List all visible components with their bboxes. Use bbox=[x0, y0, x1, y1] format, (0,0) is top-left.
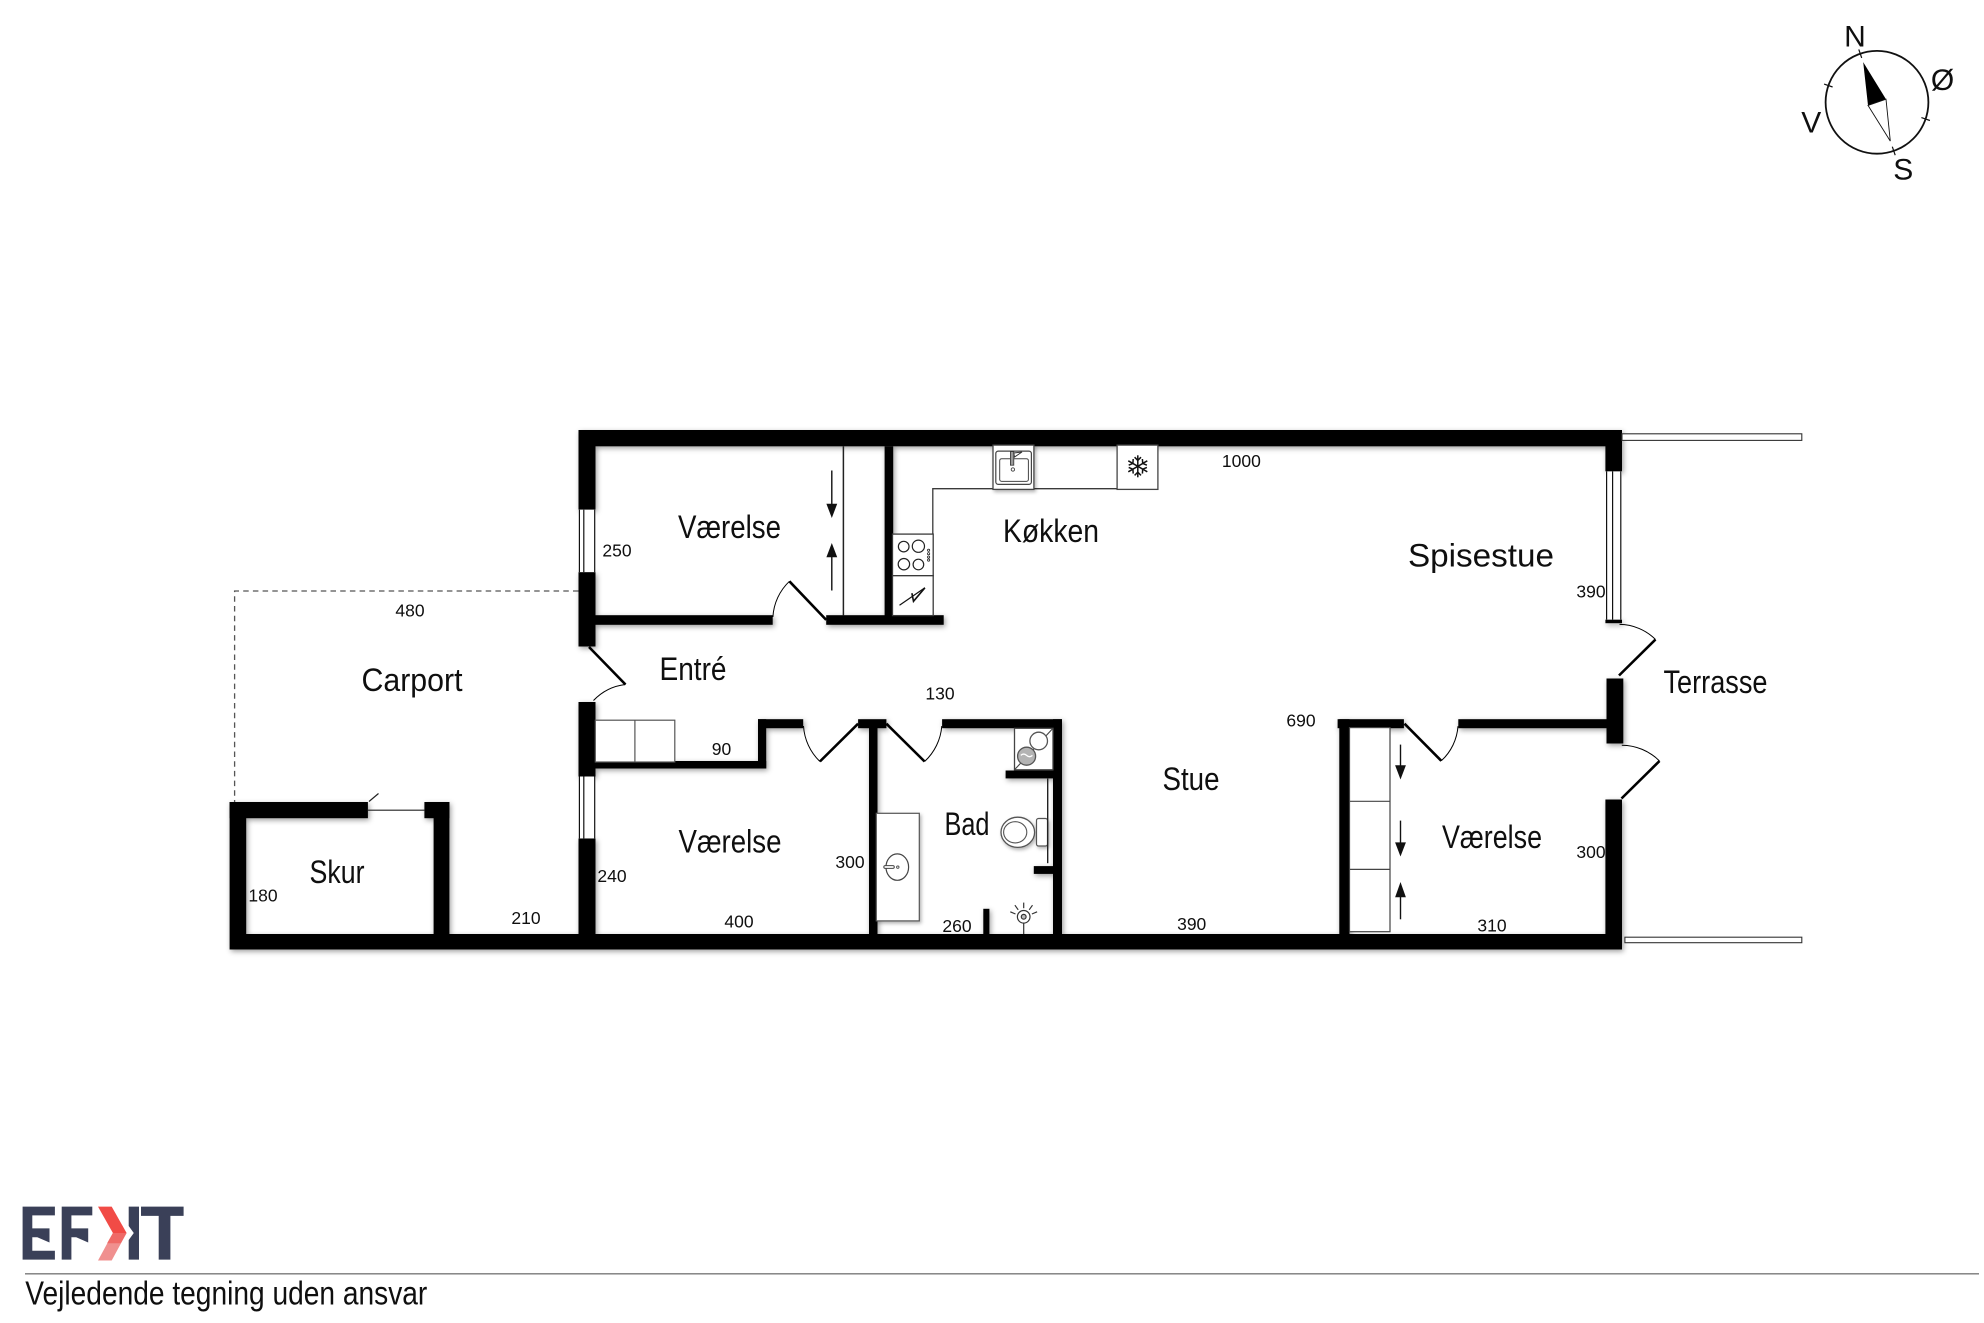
svg-text:130: 130 bbox=[925, 684, 954, 704]
svg-text:400: 400 bbox=[724, 912, 753, 932]
svg-text:Værelse: Værelse bbox=[678, 509, 781, 545]
svg-text:Ø: Ø bbox=[1931, 64, 1954, 97]
svg-text:Stue: Stue bbox=[1163, 761, 1220, 797]
svg-text:Køkken: Køkken bbox=[1003, 513, 1099, 549]
svg-text:180: 180 bbox=[248, 885, 277, 905]
svg-text:250: 250 bbox=[602, 540, 631, 560]
svg-text:Entré: Entré bbox=[660, 651, 727, 687]
svg-text:690: 690 bbox=[1286, 711, 1315, 731]
svg-text:Carport: Carport bbox=[362, 662, 463, 698]
svg-text:390: 390 bbox=[1177, 914, 1206, 934]
svg-text:310: 310 bbox=[1477, 916, 1506, 936]
svg-text:Spisestue: Spisestue bbox=[1408, 538, 1554, 574]
svg-text:210: 210 bbox=[511, 908, 540, 928]
svg-text:300: 300 bbox=[835, 852, 864, 872]
svg-text:1000: 1000 bbox=[1222, 451, 1261, 471]
svg-text:Værelse: Værelse bbox=[1442, 819, 1542, 855]
svg-text:Værelse: Værelse bbox=[679, 824, 782, 860]
svg-text:300: 300 bbox=[1576, 842, 1605, 862]
svg-text:Bad: Bad bbox=[945, 806, 990, 842]
svg-text:Vejledende tegning uden ansvar: Vejledende tegning uden ansvar bbox=[25, 1275, 427, 1312]
svg-text:390: 390 bbox=[1576, 581, 1605, 601]
svg-text:Skur: Skur bbox=[310, 854, 365, 890]
svg-text:S: S bbox=[1893, 153, 1913, 186]
svg-text:240: 240 bbox=[597, 866, 626, 886]
svg-text:V: V bbox=[1801, 107, 1821, 140]
svg-text:480: 480 bbox=[395, 600, 424, 620]
svg-text:N: N bbox=[1844, 20, 1866, 53]
svg-text:260: 260 bbox=[942, 916, 971, 936]
svg-text:Terrasse: Terrasse bbox=[1664, 664, 1768, 700]
svg-text:90: 90 bbox=[712, 739, 732, 759]
